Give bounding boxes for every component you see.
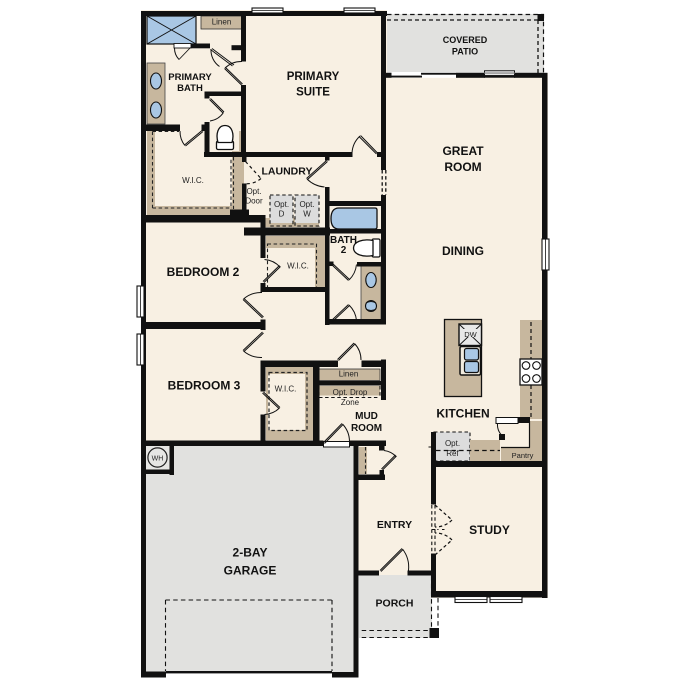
svg-text:Opt.: Opt. [246, 187, 261, 196]
svg-text:2: 2 [341, 245, 347, 256]
svg-text:W: W [303, 210, 311, 219]
svg-text:BEDROOM 3: BEDROOM 3 [168, 379, 241, 393]
svg-text:2-BAY: 2-BAY [233, 546, 268, 560]
svg-text:D: D [279, 210, 285, 219]
svg-text:PORCH: PORCH [376, 598, 414, 610]
svg-text:LAUNDRY: LAUNDRY [262, 166, 313, 178]
svg-text:PRIMARY: PRIMARY [287, 71, 340, 83]
svg-text:Opt. Drop: Opt. Drop [333, 388, 368, 397]
svg-text:W.I.C.: W.I.C. [275, 385, 297, 394]
svg-text:BEDROOM 2: BEDROOM 2 [167, 265, 240, 279]
svg-text:GARAGE: GARAGE [224, 564, 277, 578]
svg-text:GREAT: GREAT [442, 144, 484, 158]
svg-text:Pantry: Pantry [512, 451, 534, 460]
svg-text:Opt.: Opt. [274, 200, 289, 209]
svg-text:BATH: BATH [177, 83, 203, 94]
svg-text:Linen: Linen [339, 370, 359, 379]
svg-text:W.I.C.: W.I.C. [182, 176, 204, 185]
svg-text:Opt.: Opt. [445, 439, 460, 448]
svg-text:SUITE: SUITE [296, 87, 330, 99]
svg-text:ROOM: ROOM [444, 160, 481, 174]
svg-text:COVERED: COVERED [443, 35, 488, 45]
svg-text:Door: Door [245, 197, 263, 206]
svg-text:Linen: Linen [212, 18, 232, 27]
svg-text:PRIMARY: PRIMARY [168, 72, 212, 83]
svg-text:DW: DW [464, 330, 477, 339]
svg-text:W.I.C.: W.I.C. [287, 262, 309, 271]
svg-text:Zone: Zone [341, 398, 360, 407]
svg-text:DINING: DINING [442, 244, 484, 258]
svg-text:KITCHEN: KITCHEN [436, 407, 489, 421]
svg-text:Opt.: Opt. [299, 200, 314, 209]
svg-text:WH: WH [152, 456, 164, 463]
svg-text:STUDY: STUDY [469, 523, 510, 537]
svg-text:ENTRY: ENTRY [377, 519, 412, 531]
svg-text:ROOM: ROOM [351, 423, 382, 434]
svg-text:MUD: MUD [355, 411, 378, 422]
svg-text:PATIO: PATIO [452, 47, 478, 57]
